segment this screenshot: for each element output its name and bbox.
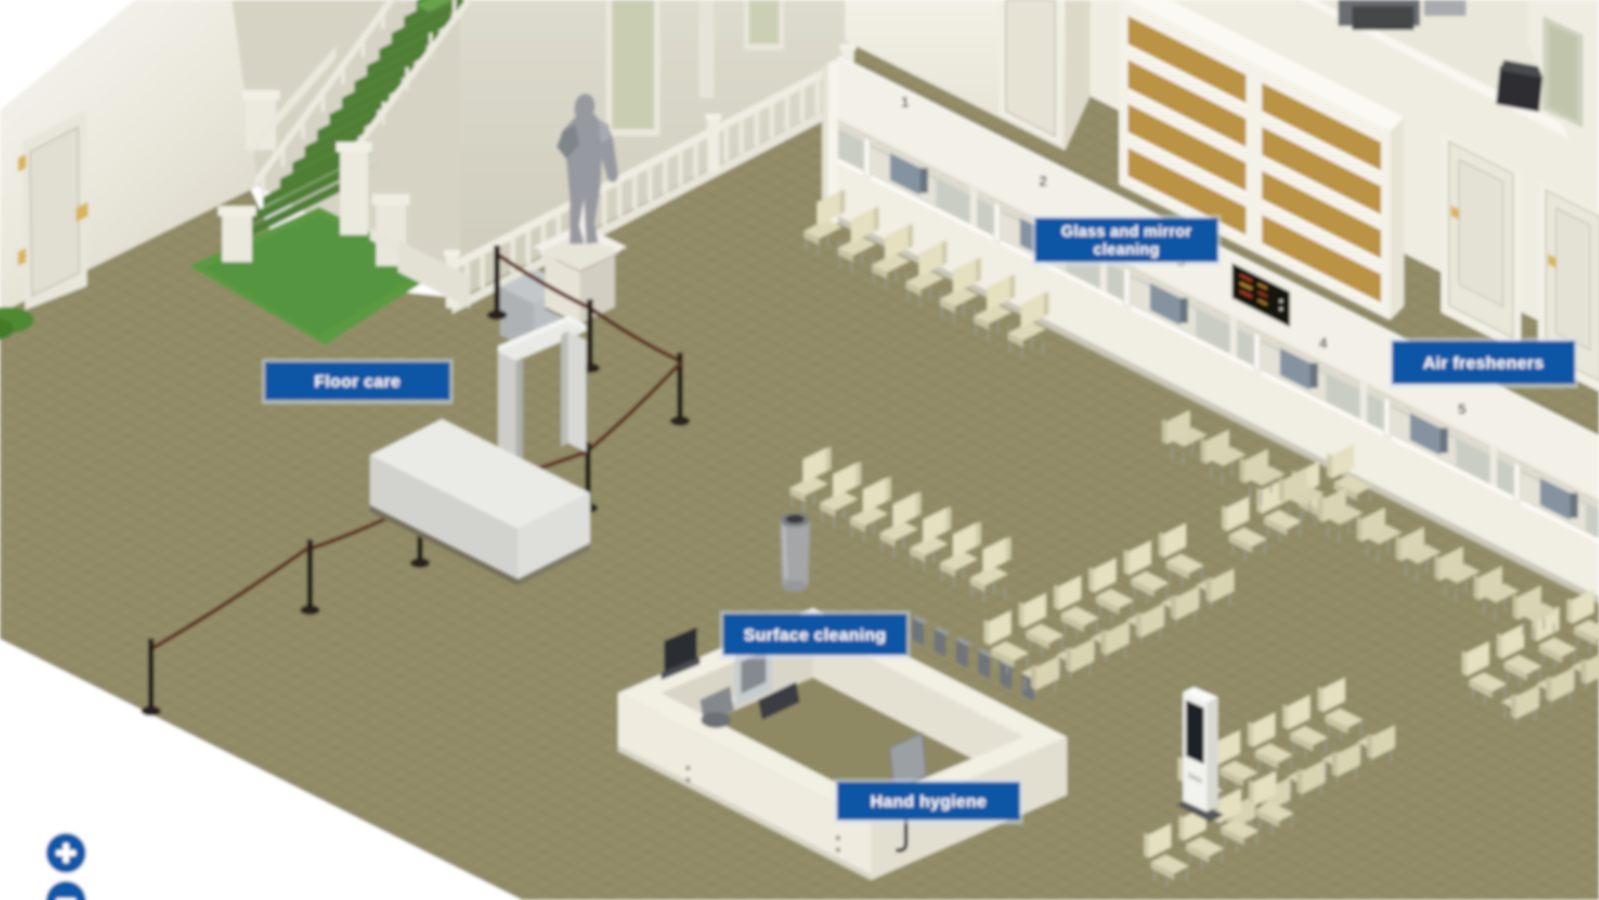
- svg-text:1: 1: [901, 94, 909, 111]
- svg-text:cleaning: cleaning: [1093, 241, 1159, 258]
- svg-text:Hand hygiene: Hand hygiene: [870, 792, 986, 811]
- svg-text:4: 4: [1319, 335, 1328, 352]
- svg-text:Glass and mirror: Glass and mirror: [1061, 223, 1191, 240]
- svg-text:Floor care: Floor care: [314, 372, 400, 391]
- svg-text:2: 2: [1039, 173, 1047, 190]
- svg-text:Surface cleaning: Surface cleaning: [744, 626, 886, 645]
- svg-text:Air fresheners: Air fresheners: [1423, 353, 1544, 372]
- svg-text:5: 5: [1458, 401, 1466, 418]
